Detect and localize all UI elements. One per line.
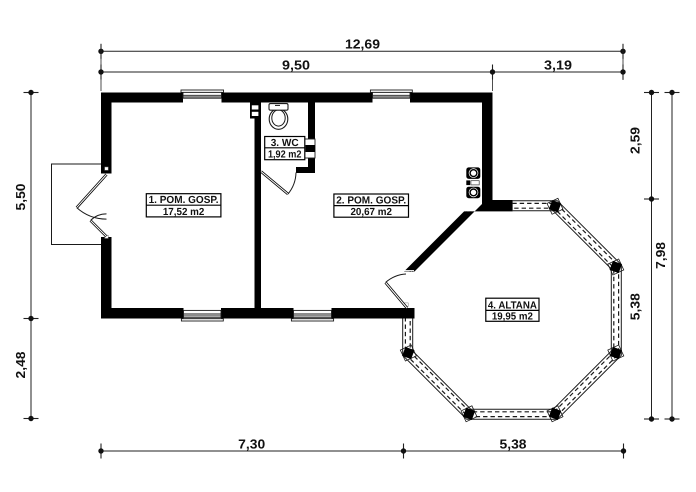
svg-text:5,38: 5,38	[627, 293, 642, 320]
svg-text:9,50: 9,50	[282, 57, 310, 72]
svg-text:20,67 m2: 20,67 m2	[350, 207, 392, 218]
svg-text:1,92 m2: 1,92 m2	[268, 150, 302, 161]
svg-text:2. POM. GOSP.: 2. POM. GOSP.	[336, 195, 406, 206]
svg-text:5,50: 5,50	[13, 184, 28, 211]
svg-text:19,95 m2: 19,95 m2	[492, 312, 533, 323]
svg-text:12,69: 12,69	[345, 36, 380, 51]
svg-text:3. WC: 3. WC	[271, 138, 300, 149]
svg-text:7,30: 7,30	[238, 436, 265, 451]
svg-text:3,19: 3,19	[544, 57, 572, 72]
svg-text:1. POM. GOSP.: 1. POM. GOSP.	[149, 195, 219, 206]
svg-text:2,59: 2,59	[627, 127, 642, 154]
svg-text:4. ALTANA: 4. ALTANA	[488, 301, 538, 312]
svg-text:5,38: 5,38	[500, 436, 527, 451]
svg-text:7,98: 7,98	[653, 242, 668, 269]
svg-text:2,48: 2,48	[13, 352, 28, 379]
svg-text:17,52 m2: 17,52 m2	[163, 207, 205, 218]
